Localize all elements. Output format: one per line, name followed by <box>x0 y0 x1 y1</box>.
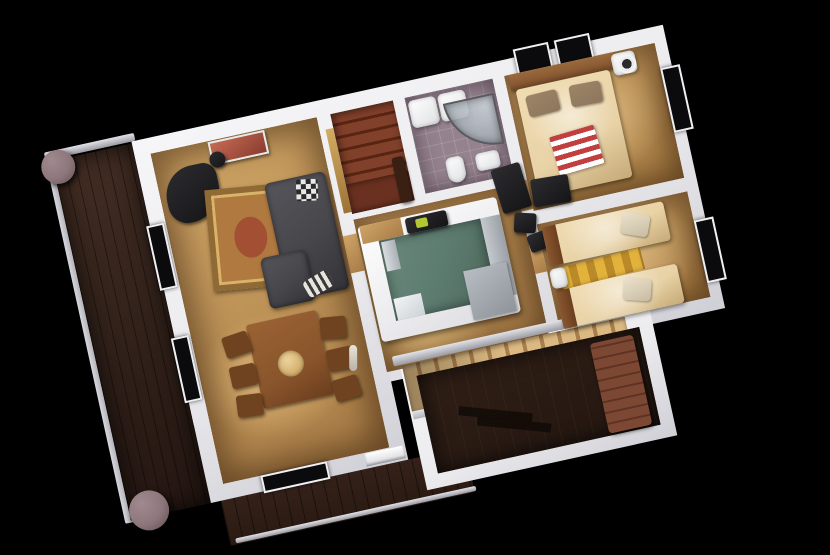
corridor-black-chair-1 <box>514 212 537 233</box>
checkered-pillow <box>296 179 319 202</box>
scene-background <box>0 0 830 555</box>
floor-lamp <box>349 345 357 371</box>
bath-tray-1 <box>407 95 440 128</box>
dining-chair-3 <box>236 393 265 418</box>
floor-plan <box>26 0 774 555</box>
twin-pillow-2 <box>622 278 651 302</box>
dining-chair-4 <box>319 315 347 339</box>
twin-pillow-1 <box>619 211 650 237</box>
